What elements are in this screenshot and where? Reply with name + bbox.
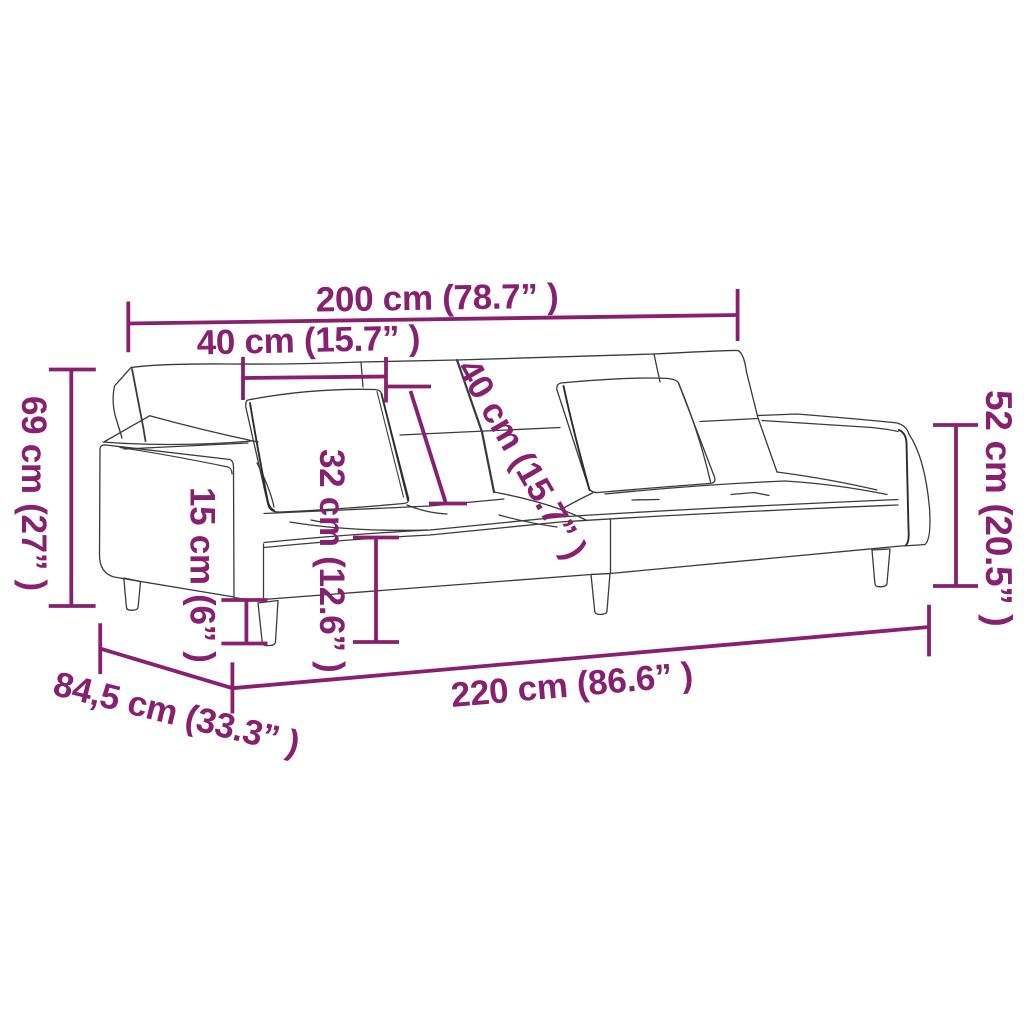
svg-text:200 cm (78.7” ): 200 cm (78.7” ) — [316, 277, 559, 320]
svg-text:52 cm (20.5” ): 52 cm (20.5” ) — [978, 390, 1019, 626]
svg-text:40 cm (15.7” ): 40 cm (15.7” ) — [196, 318, 420, 362]
svg-text:69 cm (27” ): 69 cm (27” ) — [14, 396, 53, 591]
svg-text:32 cm (12.6” ): 32 cm (12.6” ) — [312, 449, 351, 672]
svg-text:15 cm (6” ): 15 cm (6” ) — [183, 487, 222, 663]
